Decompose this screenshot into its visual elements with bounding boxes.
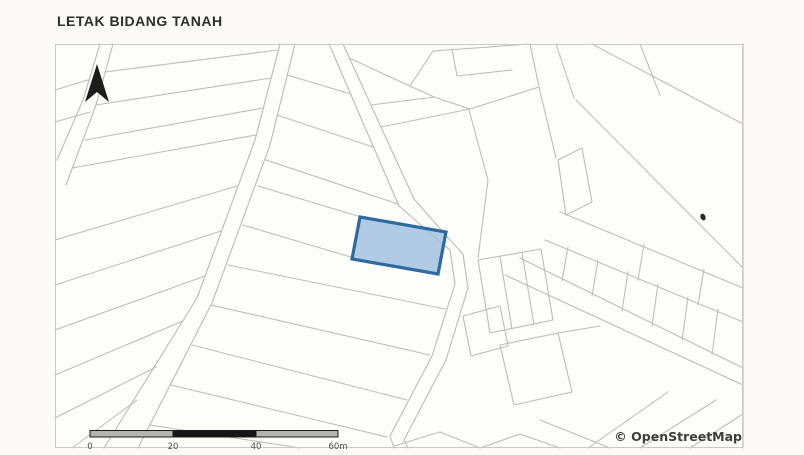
scale-bar: [90, 431, 338, 438]
scale-tick-20: 20: [168, 442, 179, 452]
map-canvas: 0 20 40 60m: [0, 0, 804, 455]
osm-attribution: © OpenStreetMap: [614, 429, 742, 444]
scale-bar-dark-segment: [173, 431, 256, 438]
scale-tick-40: 40: [251, 442, 262, 452]
scale-tick-0: 0: [87, 442, 92, 452]
scale-tick-60m: 60m: [328, 442, 347, 452]
scanned-map-page: LETAK BIDANG TANAH: [0, 0, 804, 455]
